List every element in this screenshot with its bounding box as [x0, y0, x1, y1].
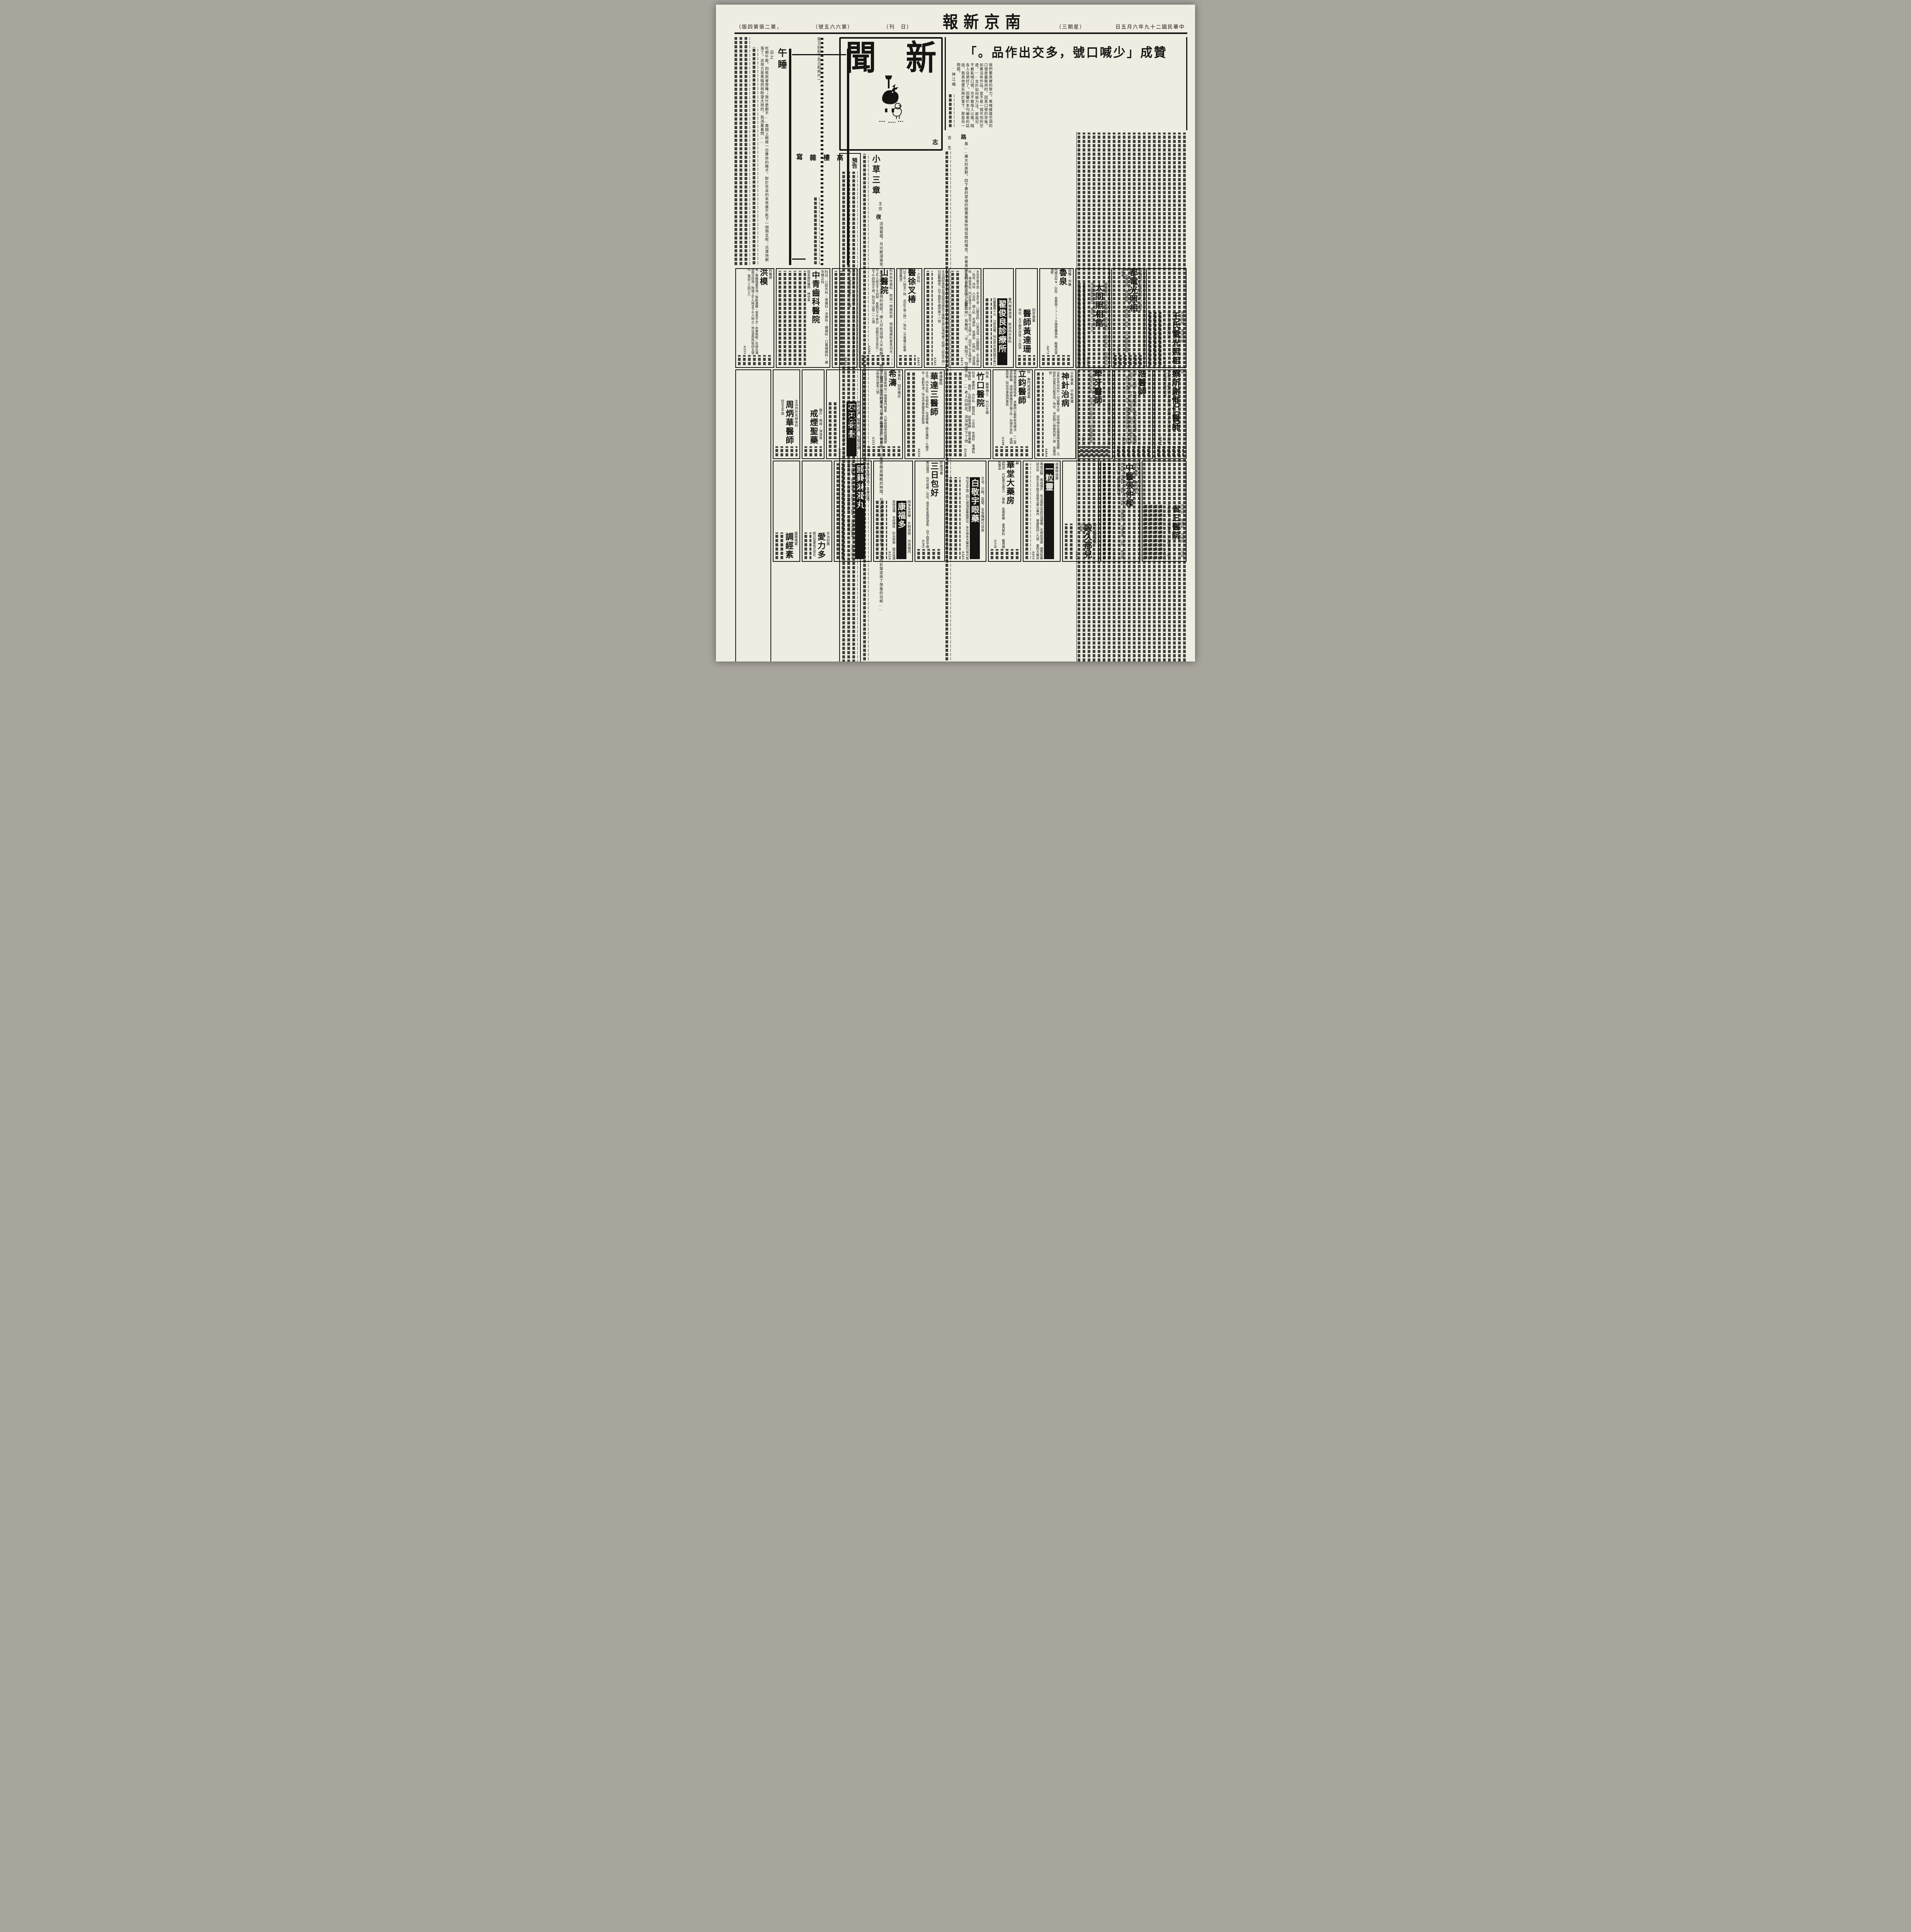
ad-kicker: 鴉片・嗎啡・海洛英 [819, 408, 823, 446]
slogan-more-text [949, 94, 954, 127]
advertisement-qiangshen: 強身保腎丸 [735, 369, 771, 662]
ad-fine-print [738, 355, 772, 365]
edition-label: （版四第張二第， [736, 23, 782, 30]
ad-fine-print [899, 355, 916, 365]
ad-fine-print [1149, 312, 1162, 365]
ad-fine-print [867, 446, 901, 456]
wushui-title: 午睡 [775, 48, 788, 264]
ad-title: 顧洪模 [759, 268, 768, 354]
xiaocao-more-text [863, 154, 869, 662]
daily-label: （刊 日） [883, 23, 912, 30]
notice-text [842, 172, 858, 662]
advertisement: 外治妙藥 愛力多 朝日製藥株式會社 [802, 461, 832, 562]
ad-kicker: 主治內外花柳各科 [794, 400, 798, 446]
logo-char-left: 聞 [845, 42, 876, 74]
ad-fine-print [775, 532, 783, 559]
ad-title: 周炳華醫師 [785, 400, 794, 445]
advertisement: 性病專科醫師 顧洪模 回京復業／專醫陽萎早洩・腎虧遺精・發育不全・房事無能／花柳… [735, 268, 774, 368]
ad-kicker: 國藥瑰寶 [794, 532, 798, 560]
filler-column: 我又記起了自己和時代一。 [813, 37, 837, 265]
ad-fine-print [804, 446, 822, 456]
ad-fine-print [917, 549, 942, 559]
ad-fine-print [779, 271, 806, 365]
supplement-logo: 聞 [839, 37, 943, 151]
header-strip: （版四第張二第， （號五六六第） （刊 日） 報新京南 （三期星） 日五月六年九… [716, 5, 1195, 32]
ad-title: 愛力多 [817, 532, 825, 559]
ad-fine-print [1037, 372, 1044, 456]
ad-fine-print [1117, 446, 1150, 456]
ad-fine-print [1114, 355, 1141, 365]
ad-fine-print [991, 549, 1018, 559]
ad-fine-print [1103, 463, 1112, 559]
xiaocao-title: 小草三章 [870, 155, 882, 196]
advertisement: 鴉片・嗎啡・海洛英 戒煙聖藥 [802, 369, 825, 459]
ad-fine-print [1065, 524, 1074, 559]
logo-small-char: 志 [932, 138, 938, 146]
ad-fine-print [927, 271, 932, 365]
ad-title: 調經素 [785, 532, 793, 559]
ad-fine-print [775, 446, 797, 456]
xiaocao-body: 流過窗櫺，月光輕瀉進來，是美麗使人迷惘的夜呢！撩人月色逗得人不能靜了。伸出手看不… [869, 222, 882, 662]
ad-kicker: 外治妙藥 [826, 532, 830, 560]
xiaocao-author: 王京 [869, 202, 882, 212]
wushui-body: 吃飽午飯，四肢就會發睡；我什麼都不……需閉上眼做一位算命的瞎子，對於花朵的未來誰… [759, 46, 768, 265]
wushui-author: 滔之 [768, 50, 774, 265]
newspaper-page: （版四第張二第， （號五六六第） （刊 日） 報新京南 （三期星） 日五月六年九… [716, 5, 1195, 662]
ad-title: 戒煙聖藥 [809, 409, 818, 445]
ad-fine-print [1078, 283, 1085, 365]
article-wushui: 高 樓 雜 寫 午睡 滔之 吃飽午飯，四肢就會發睡；我什麼都不……需閉上眼做一位… [752, 37, 811, 265]
ad-title: 中青齒科醫院 [811, 271, 820, 365]
wushui-more-text [753, 47, 758, 264]
slogan-article: 「。品作出交多，號口喊少」成贊 我們要眞實的努力，單喊幾聲空洞的口號是最無用的，… [945, 37, 1187, 130]
ad-fine-print [829, 401, 837, 456]
notice-title: 預告 [842, 158, 858, 168]
masthead-title: 報新京南 [943, 14, 1026, 31]
ad-fine-print [862, 355, 892, 365]
ad-fine-print [1018, 355, 1035, 365]
ad-fine-print [907, 372, 916, 456]
ad-kicker: 科目：口腔外科・拔齒科・治療科・鑲補科・口蓋補綴科・齒列矯正科 [821, 270, 828, 366]
advertisement: 主治內外花柳各科 周炳華醫師 院在太平路 [773, 369, 800, 459]
ad-fine-print [804, 532, 812, 559]
ad-fine-print [876, 501, 887, 559]
ad-fine-print [1144, 505, 1162, 559]
ad-fine-print [949, 372, 963, 456]
wavy-divider [821, 37, 823, 265]
slogan-headline: 「。品作出交多，號口喊少」成贊 [946, 36, 1186, 63]
issue-label: （號五六六第） [813, 23, 853, 30]
filler-text [814, 197, 819, 264]
editorial-area: 高 樓 雜 寫 午睡 滔之 吃飽午飯，四肢就會發睡；我什麼都不……需閉上眼做一位… [716, 34, 1195, 267]
rooster-chick-illustration [878, 42, 904, 146]
ad-fine-print [986, 298, 992, 365]
ad-fine-print [951, 271, 959, 365]
ad-details: 回京復業／專醫陽萎早洩・腎虧遺精・發育不全・房事無能／花柳白濁橫痃下疳限日除根／… [747, 268, 758, 354]
ad-details: 院長齒科醫師 林中青 [807, 270, 811, 366]
ad-fine-print [1042, 355, 1071, 365]
gaolou-char: 寫 [792, 54, 806, 260]
ad-fine-print [1025, 463, 1031, 559]
lu-section: 路 [952, 134, 967, 139]
slogan-body: 我們要眞實的努力，單喊幾聲空洞的口號是最無用的，因爲口號的背後，如果沒有作品，豈… [955, 63, 992, 128]
advertisement: 國藥瑰寶 調經素 [773, 461, 800, 562]
ad-fine-print [836, 463, 846, 559]
slogan-and-right: 「。品作出交多，號口喊少」成贊 我們要眞實的努力，單喊幾聲空洞的口號是最無用的，… [945, 37, 1187, 265]
ad-fine-print [1080, 446, 1110, 456]
advertisement: 科目：口腔外科・拔齒科・治療科・鑲補科・口蓋補綴科・齒列矯正科 中青齒科醫院 院… [776, 268, 830, 368]
notice-box: 預告 [839, 153, 861, 662]
xiaocao-section: 夜 [870, 214, 882, 219]
slogan-signature: ·林江鳴· [948, 67, 955, 93]
ad-fine-print [835, 271, 843, 365]
ad-details: 朝日製藥株式會社 [812, 532, 816, 560]
ad-code: A553 [743, 345, 747, 354]
side-note: 我又記起了自己和時代一。 [813, 37, 820, 197]
left-margin-text [734, 37, 750, 265]
weekday-label: （三期星） [1056, 23, 1085, 30]
logo-char-right: 新 [906, 42, 936, 74]
ad-fine-print [1157, 446, 1184, 456]
ad-kicker: 性病專科醫師 [768, 268, 772, 354]
ad-details: 院在太平路 [780, 400, 784, 446]
logo-and-xiaocao: 聞 [839, 37, 943, 265]
right-essay-text [1078, 133, 1187, 662]
ad-fine-print [995, 446, 1030, 456]
ad-fine-print [949, 477, 961, 559]
date-label: 日五月六年九十二國民華中 [1115, 23, 1185, 30]
shugui-author: 吉 生 [945, 136, 952, 151]
